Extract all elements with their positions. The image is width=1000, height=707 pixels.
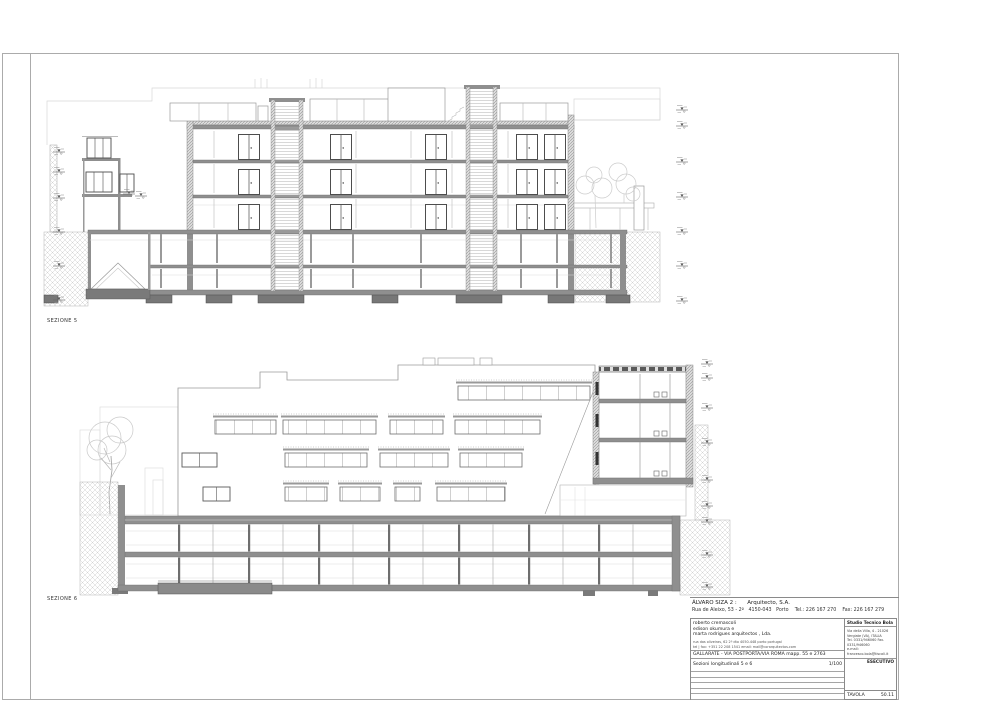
architect-header: ÁLVARO SIZA 2 : Arquitecto, S.A. Rua de … — [690, 597, 899, 615]
section-5-label: SEZIONE 5 — [47, 318, 77, 324]
tavola-number: 50.11 — [881, 693, 894, 698]
stair-shaft-1 — [269, 98, 305, 291]
stair-shaft-2 — [464, 85, 500, 291]
tavola-label: TAVOLA — [847, 693, 865, 698]
sheet: { "page": { "background": "#ffffff", "fr… — [0, 0, 1000, 707]
section-6-label: SEZIONE 6 — [47, 596, 77, 602]
phase-label: ESECUTIVO — [845, 658, 896, 666]
project-name: GALLARATE - VIA POSTPORTA/VIA ROMA mapp.… — [691, 650, 844, 658]
architect-name: ÁLVARO SIZA 2 : Arquitecto, S.A. — [692, 600, 899, 606]
title-block: ÁLVARO SIZA 2 : Arquitecto, S.A. Rua de … — [690, 597, 899, 700]
studio-contacts: Via della Villa, 4 - 21026 Vergiate (VA)… — [845, 627, 896, 658]
architect-address: Rua de Aleixo, 53 - 2º 4150-043 Porto Te… — [692, 608, 899, 613]
studio-name: Studio Tecnico Bola — [845, 619, 896, 627]
drawing-title: Sezioni longitudinali 5 e 6 — [693, 662, 752, 667]
title-block-table: roberto cremascoli edison okumura e mart… — [690, 618, 897, 700]
collaborators: roberto cremascoli edison okumura e mart… — [691, 619, 844, 638]
canopy — [158, 583, 272, 594]
revision-rows — [691, 671, 844, 705]
collaborator-contacts: rua das oliveiras, 62 2º dto 4050-448 po… — [691, 638, 844, 650]
tavola-row: TAVOLA 50.11 — [845, 690, 896, 699]
drawing-title-row: Sezioni longitudinali 5 e 6 1/100 — [691, 658, 844, 671]
drawing-scale: 1/100 — [829, 662, 842, 667]
